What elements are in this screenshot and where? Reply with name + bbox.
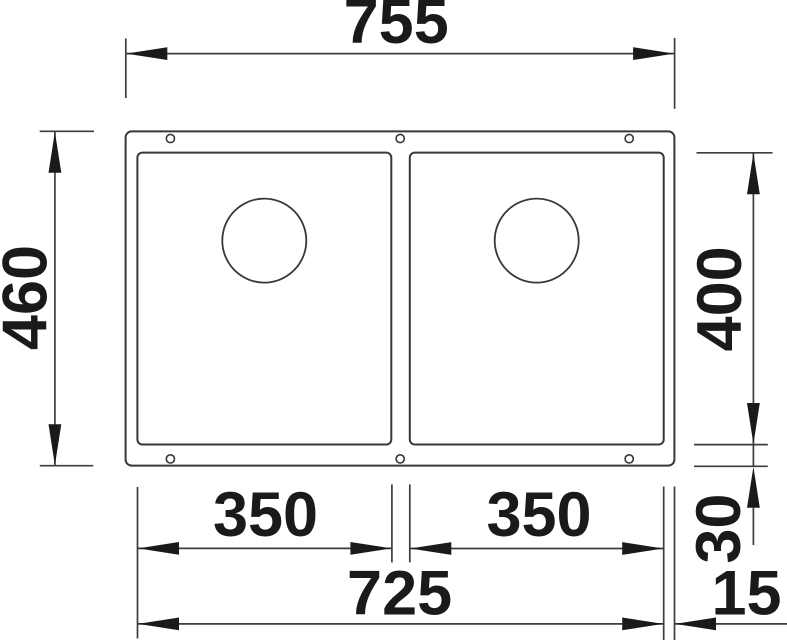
svg-text:15: 15 <box>711 558 781 628</box>
svg-text:725: 725 <box>347 558 452 628</box>
svg-text:30: 30 <box>684 494 754 564</box>
svg-text:350: 350 <box>213 480 318 550</box>
svg-text:460: 460 <box>0 245 61 350</box>
svg-text:400: 400 <box>685 246 755 351</box>
svg-text:350: 350 <box>486 480 591 550</box>
svg-text:755: 755 <box>344 0 449 57</box>
